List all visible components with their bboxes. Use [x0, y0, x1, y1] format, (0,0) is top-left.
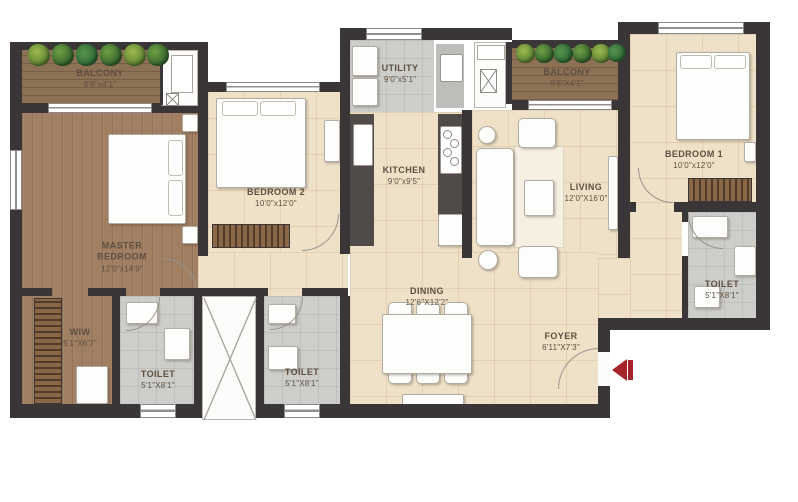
room-label-dining: DINING 12'6"X12'2": [406, 286, 449, 308]
living-armchair: [518, 246, 558, 278]
duct-cross-icon: [480, 69, 497, 93]
room-label-toilet-1: TOILET 5'1"X8'1": [705, 279, 739, 301]
toilet-wc: [734, 246, 756, 276]
vent-toilet-master: [140, 404, 176, 418]
wall: [756, 22, 770, 330]
shaft-cross-icon: [203, 297, 257, 421]
plant-icon: [100, 44, 122, 66]
bedroom2-wardrobe: [212, 224, 290, 248]
plant-icon: [573, 44, 592, 63]
wall: [598, 386, 610, 404]
wall: [674, 202, 756, 212]
bedroom1-pillow: [714, 55, 746, 69]
wall: [598, 318, 770, 330]
wall: [160, 288, 268, 296]
window-living-balcony: [528, 100, 612, 110]
wall: [598, 318, 610, 352]
side-table: [478, 250, 498, 270]
dining-table: [382, 314, 472, 374]
plant-icon: [147, 44, 169, 66]
wall: [630, 22, 658, 34]
wall: [22, 288, 52, 296]
stove-burner: [450, 139, 459, 148]
living-sofa: [476, 148, 514, 246]
room-label-toilet-master: TOILET 5'1"X8'1": [141, 369, 175, 391]
plant-icon: [124, 44, 146, 66]
room-label-utility: UTILITY 9'0"x5'1": [382, 63, 419, 85]
wall: [88, 288, 126, 296]
wall: [194, 296, 202, 404]
floor-plan: BALCONY 8'6"x4'1" MASTER BEDROOM 12'0"x1…: [0, 0, 798, 502]
entry-arrow-icon: [612, 359, 627, 381]
wall: [506, 42, 512, 104]
stove-burner: [443, 130, 452, 139]
duct-cross-icon: [166, 93, 179, 106]
window-bedroom1: [658, 22, 744, 34]
window-master-left: [10, 150, 22, 210]
master-pillow: [168, 140, 183, 176]
room-label-foyer: FOYER 6'11"X7'3": [542, 331, 580, 353]
wall: [340, 296, 350, 404]
floor-corridor-b: [630, 202, 682, 318]
stair-shaft: [202, 296, 256, 420]
floor-corridor-a: [598, 258, 630, 318]
room-label-balcony-2: BALCONY 8'6"X4'1": [543, 67, 590, 89]
room-label-living: LIVING 12'0"X16'0": [565, 182, 608, 204]
duct-kitchen-side: [474, 42, 506, 108]
washing-machine: [352, 46, 378, 76]
wall: [10, 42, 22, 418]
plant-icon: [28, 44, 50, 66]
room-label-master: MASTER BEDROOM 12'0"x14'9": [84, 240, 160, 274]
room-label-balcony-1: BALCONY 8'6"x4'1": [76, 68, 123, 90]
refrigerator: [438, 214, 464, 246]
plant-icon: [554, 44, 573, 63]
entry-door-opening: [598, 352, 610, 386]
window-utility: [366, 28, 422, 40]
room-label-kitchen: KITCHEN 9'0"x9'5": [383, 165, 426, 187]
stove-burner: [443, 148, 452, 157]
coffee-table: [524, 180, 554, 216]
wall: [112, 296, 120, 404]
bedroom2-side-unit: [324, 120, 340, 162]
bedroom1-pillow: [680, 55, 712, 69]
nightstand: [182, 114, 198, 132]
entry-arrow-icon: [628, 360, 633, 380]
wiw-wardrobe: [34, 298, 62, 404]
room-label-bedroom-1: BEDROOM 1 10'0"x12'0": [665, 149, 723, 171]
vent-toilet-common: [284, 404, 320, 418]
toilet-basin: [164, 328, 190, 360]
tv-unit: [608, 156, 618, 230]
room-label-wiw: WIW 5'1"X6'7": [63, 327, 97, 349]
wiw-dresser: [76, 366, 108, 404]
utility-sink: [352, 78, 378, 106]
plant-icon: [535, 44, 554, 63]
plant-icon: [76, 44, 98, 66]
room-label-bedroom-2: BEDROOM 2 10'0"x12'0": [247, 187, 305, 209]
wall: [682, 212, 688, 222]
bedroom1-wardrobe: [688, 178, 752, 202]
bedroom2-pillow: [222, 101, 258, 116]
side-table: [478, 126, 496, 144]
wall: [630, 202, 636, 212]
wall: [462, 110, 472, 258]
master-pillow: [168, 180, 183, 216]
nightstand: [182, 226, 198, 244]
room-label-toilet-common: TOILET 5'1"X8'1": [285, 367, 319, 389]
wall: [340, 28, 350, 254]
kitchen-sink: [353, 124, 373, 166]
window-master-balcony: [48, 103, 152, 113]
living-armchair: [518, 118, 556, 148]
wash-area-tray: [440, 54, 463, 82]
plant-icon: [52, 44, 74, 66]
bedroom2-pillow: [260, 101, 296, 116]
wall: [256, 296, 264, 404]
wall: [198, 92, 208, 256]
window-bedroom2: [226, 82, 320, 92]
plant-icon: [516, 44, 535, 63]
bedroom1-side-unit: [744, 142, 756, 162]
wall: [682, 256, 688, 318]
plant-icon: [608, 44, 626, 62]
wall: [744, 22, 756, 34]
wall: [302, 288, 348, 296]
stove-burner: [450, 157, 459, 166]
